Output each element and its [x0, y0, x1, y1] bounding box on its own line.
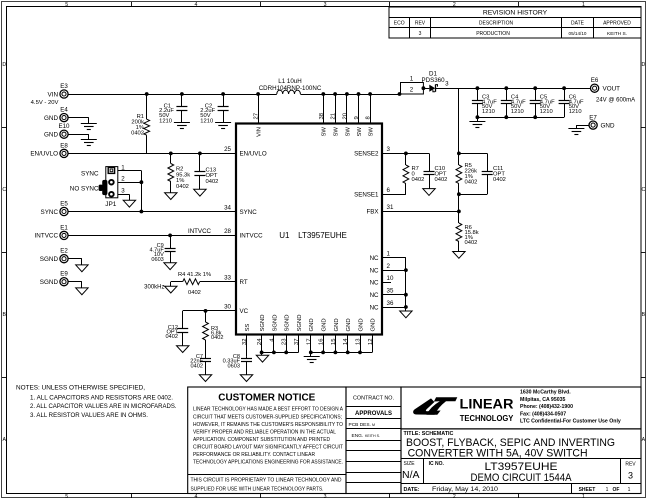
- svg-text:EN/UVLO: EN/UVLO: [240, 151, 267, 158]
- svg-text:NC: NC: [370, 292, 379, 299]
- svg-text:2: 2: [121, 176, 125, 183]
- svg-text:C: C: [2, 187, 6, 193]
- svg-text:13: 13: [356, 338, 362, 345]
- svg-text:3: 3: [324, 2, 327, 8]
- svg-text:14: 14: [343, 338, 349, 345]
- svg-text:3: 3: [387, 146, 391, 153]
- svg-text:E9: E9: [60, 271, 68, 278]
- svg-text:NOTES: UNLESS OTHERWISE SPECIF: NOTES: UNLESS OTHERWISE SPECIFIED,: [16, 385, 145, 392]
- svg-text:RT: RT: [240, 279, 248, 286]
- svg-text:PRODUCTION: PRODUCTION: [476, 31, 510, 37]
- svg-text:TECHNOLOGY APPLICATIONS ENGINE: TECHNOLOGY APPLICATIONS ENGINEERING FOR …: [193, 460, 343, 466]
- svg-text:SGND: SGND: [285, 314, 291, 331]
- svg-text:5: 5: [65, 2, 68, 8]
- svg-text:SGND: SGND: [272, 314, 278, 331]
- svg-text:D: D: [642, 62, 646, 68]
- svg-text:VIN: VIN: [257, 127, 263, 137]
- svg-text:INTVCC: INTVCC: [35, 233, 59, 240]
- svg-text:NO SYNC: NO SYNC: [70, 185, 99, 192]
- svg-text:0402: 0402: [435, 177, 448, 183]
- svg-text:R4 41.2k 1%: R4 41.2k 1%: [178, 272, 211, 278]
- svg-text:0402: 0402: [493, 177, 506, 183]
- svg-text:24: 24: [257, 338, 263, 345]
- svg-text:GND: GND: [44, 132, 58, 139]
- svg-text:VOUT: VOUT: [603, 86, 621, 93]
- svg-text:0402: 0402: [188, 290, 201, 296]
- svg-text:Phone: (408)432-1900: Phone: (408)432-1900: [520, 404, 573, 410]
- svg-text:23: 23: [282, 338, 288, 345]
- svg-text:CIRCUIT BOARD LAYOUT MAY SIGNI: CIRCUIT BOARD LAYOUT MAY SIGNIFICANTLY A…: [193, 444, 343, 450]
- svg-text:3. ALL RESISTOR VALUES ARE IN: 3. ALL RESISTOR VALUES ARE IN OHMS.: [30, 412, 148, 419]
- svg-text:300kHz: 300kHz: [144, 285, 164, 291]
- svg-text:DEMO CIRCUIT 1544A: DEMO CIRCUIT 1544A: [471, 472, 573, 484]
- svg-text:N/A: N/A: [402, 469, 420, 481]
- svg-text:0402: 0402: [176, 184, 189, 190]
- svg-text:1: 1: [628, 487, 631, 493]
- svg-text:CUSTOMER NOTICE: CUSTOMER NOTICE: [218, 391, 315, 403]
- svg-text:25: 25: [224, 146, 231, 153]
- svg-text:SGND: SGND: [40, 279, 59, 286]
- svg-text:GND: GND: [371, 318, 377, 331]
- svg-text:0603: 0603: [151, 257, 163, 263]
- svg-text:1210: 1210: [540, 109, 553, 115]
- svg-text:17: 17: [306, 339, 312, 346]
- svg-text:VC: VC: [240, 308, 249, 315]
- svg-text:OF: OF: [613, 487, 620, 493]
- svg-text:38: 38: [319, 112, 325, 119]
- svg-text:KEITH S.: KEITH S.: [607, 31, 627, 37]
- svg-text:E6: E6: [591, 77, 599, 84]
- svg-text:0402: 0402: [166, 334, 178, 340]
- svg-text:24V @ 600mA: 24V @ 600mA: [596, 97, 635, 103]
- svg-text:SUPPLIED FOR USE WITH LINEAR T: SUPPLIED FOR USE WITH LINEAR TECHNOLOGY …: [191, 487, 324, 493]
- svg-text:1210: 1210: [569, 109, 582, 115]
- svg-text:9: 9: [354, 116, 360, 119]
- svg-text:32: 32: [242, 339, 248, 346]
- svg-text:GND: GND: [322, 318, 328, 331]
- svg-text:GND: GND: [309, 318, 315, 331]
- svg-text:SW: SW: [345, 127, 351, 137]
- svg-text:PERFORMANCE OR RELIABILITY. C: PERFORMANCE OR RELIABILITY. CONTACT LINE…: [193, 452, 315, 458]
- svg-text:2: 2: [387, 263, 391, 270]
- svg-text:APPROVED: APPROVED: [603, 21, 631, 27]
- svg-text:1210: 1210: [159, 119, 172, 125]
- svg-text:1210: 1210: [200, 119, 213, 125]
- svg-text:SHEET: SHEET: [579, 487, 596, 493]
- svg-text:1: 1: [410, 76, 414, 83]
- svg-text:12: 12: [368, 339, 374, 346]
- svg-text:DATE:: DATE:: [404, 487, 420, 493]
- svg-text:SYNC: SYNC: [81, 171, 99, 178]
- svg-text:CIRCUIT THAT MEETS CUSTOMER-SU: CIRCUIT THAT MEETS CUSTOMER-SUPPLIED SPE…: [193, 414, 342, 420]
- svg-text:E1: E1: [60, 224, 68, 231]
- svg-text:IC NO.: IC NO.: [429, 461, 445, 467]
- svg-text:E3: E3: [60, 83, 68, 90]
- svg-text:SGND: SGND: [40, 256, 59, 263]
- svg-text:30: 30: [224, 304, 231, 311]
- svg-text:4: 4: [195, 2, 198, 8]
- svg-text:2: 2: [410, 87, 414, 94]
- svg-text:20: 20: [342, 112, 348, 119]
- svg-text:10: 10: [387, 275, 394, 282]
- svg-text:KEITH S.: KEITH S.: [365, 434, 380, 438]
- svg-text:REVISION HISTORY: REVISION HISTORY: [483, 9, 548, 16]
- svg-text:1. ALL CAPACITORS AND RESISTO: 1. ALL CAPACITORS AND RESISTORS ARE 0402…: [30, 394, 173, 401]
- svg-text:APPROVALS: APPROVALS: [355, 411, 392, 417]
- svg-text:GND: GND: [346, 318, 352, 331]
- svg-text:NC: NC: [370, 280, 379, 287]
- svg-text:U1: U1: [279, 231, 290, 240]
- svg-text:0402: 0402: [465, 179, 478, 185]
- svg-text:LINEAR: LINEAR: [460, 397, 514, 412]
- svg-text:CONVERTER WITH 5A, 40V SWITCH: CONVERTER WITH 5A, 40V SWITCH: [408, 448, 588, 460]
- svg-text:E10: E10: [58, 123, 70, 130]
- svg-text:A: A: [2, 437, 6, 443]
- svg-text:21: 21: [331, 113, 337, 120]
- svg-text:1210: 1210: [482, 109, 495, 115]
- svg-text:SGND: SGND: [297, 314, 303, 331]
- svg-text:LINEAR TECHNOLOGY HAS MADE A B: LINEAR TECHNOLOGY HAS MADE A BEST EFFORT…: [193, 407, 343, 413]
- svg-text:1210: 1210: [511, 109, 524, 115]
- svg-text:C: C: [642, 187, 646, 193]
- svg-text:3: 3: [628, 471, 633, 481]
- svg-text:GND: GND: [601, 122, 615, 129]
- svg-text:SGND: SGND: [260, 314, 266, 331]
- svg-text:VIN: VIN: [48, 91, 59, 98]
- svg-text:E2: E2: [60, 248, 68, 255]
- svg-text:1: 1: [121, 164, 125, 171]
- svg-text:REV: REV: [415, 21, 426, 27]
- svg-text:SYNC: SYNC: [240, 209, 258, 216]
- svg-text:3: 3: [445, 81, 449, 88]
- svg-text:2: 2: [453, 494, 456, 500]
- svg-text:NC: NC: [370, 255, 379, 262]
- svg-text:M: M: [372, 423, 375, 427]
- svg-text:36: 36: [387, 300, 394, 307]
- svg-text:1: 1: [606, 487, 609, 493]
- svg-text:SW: SW: [357, 127, 363, 137]
- svg-text:27: 27: [254, 113, 260, 120]
- svg-text:3: 3: [419, 31, 422, 37]
- svg-text:0402: 0402: [211, 335, 223, 341]
- svg-text:E7: E7: [589, 114, 597, 121]
- svg-text:SW: SW: [369, 127, 375, 137]
- svg-text:Fax: (408)434-0507: Fax: (408)434-0507: [520, 411, 566, 417]
- svg-text:Milpitas, CA 95035: Milpitas, CA 95035: [520, 397, 565, 403]
- svg-text:2. ALL CAPACITOR VALUES ARE I: 2. ALL CAPACITOR VALUES ARE IN MICROFARA…: [30, 403, 177, 410]
- svg-text:E5: E5: [60, 201, 68, 208]
- svg-text:16: 16: [319, 338, 325, 345]
- svg-text:LTC Confidential-For Customer: LTC Confidential-For Customer Use Only: [520, 419, 621, 425]
- svg-text:15: 15: [331, 338, 337, 345]
- svg-text:ENG.: ENG.: [352, 433, 364, 439]
- svg-text:SENSE1: SENSE1: [354, 192, 379, 199]
- svg-text:E4: E4: [60, 107, 68, 114]
- svg-text:Friday, May 14, 2010: Friday, May 14, 2010: [432, 487, 499, 493]
- svg-text:INTVCC: INTVCC: [188, 228, 212, 235]
- svg-text:D: D: [2, 62, 6, 68]
- svg-text:4.5V - 20V: 4.5V - 20V: [31, 100, 59, 106]
- svg-text:REV: REV: [625, 462, 636, 468]
- svg-text:NC: NC: [370, 267, 379, 274]
- svg-text:INTVCC: INTVCC: [240, 233, 264, 240]
- svg-text:TECHNOLOGY: TECHNOLOGY: [460, 413, 514, 423]
- svg-text:3: 3: [324, 494, 327, 500]
- svg-text:28: 28: [224, 228, 231, 235]
- svg-text:SW: SW: [334, 127, 340, 137]
- svg-text:APPLICATION. COMPONENT SUBSTI: APPLICATION. COMPONENT SUBSTITUTION AND …: [193, 437, 330, 443]
- svg-text:SS: SS: [245, 324, 251, 332]
- svg-text:GND: GND: [334, 318, 340, 331]
- svg-text:0603: 0603: [228, 363, 240, 369]
- svg-text:A: A: [642, 437, 646, 443]
- svg-text:5: 5: [65, 494, 68, 500]
- svg-text:0402: 0402: [412, 177, 425, 183]
- svg-text:PDS360: PDS360: [421, 77, 445, 84]
- svg-text:1630 McCarthy Blvd.: 1630 McCarthy Blvd.: [520, 390, 571, 396]
- svg-text:B: B: [642, 312, 646, 318]
- svg-text:1: 1: [387, 251, 391, 258]
- svg-text:4: 4: [195, 494, 198, 500]
- svg-text:0402: 0402: [131, 131, 144, 137]
- svg-text:CDRH104RNP-100NC: CDRH104RNP-100NC: [259, 85, 322, 92]
- svg-text:37: 37: [294, 339, 300, 346]
- svg-text:GND: GND: [358, 318, 364, 331]
- svg-text:DESCRIPTION: DESCRIPTION: [479, 21, 514, 27]
- svg-text:34: 34: [224, 204, 231, 211]
- svg-text:GND: GND: [44, 115, 58, 122]
- svg-text:JP1: JP1: [105, 201, 117, 208]
- svg-text:0402: 0402: [465, 240, 478, 246]
- svg-text:31: 31: [387, 204, 394, 211]
- svg-text:SYNC: SYNC: [41, 209, 59, 216]
- svg-text:3: 3: [121, 188, 125, 195]
- svg-text:LT3957EUHE: LT3957EUHE: [298, 231, 347, 240]
- svg-text:0402: 0402: [206, 179, 219, 185]
- svg-text:CONTRACT NO.: CONTRACT NO.: [353, 395, 394, 401]
- svg-text:35: 35: [387, 288, 394, 295]
- svg-text:B: B: [2, 312, 6, 318]
- svg-text:DATE: DATE: [571, 21, 585, 27]
- svg-text:SW: SW: [322, 127, 328, 137]
- svg-text:ECO: ECO: [394, 21, 405, 27]
- svg-text:EN/UVLO: EN/UVLO: [30, 151, 58, 158]
- svg-text:0402: 0402: [191, 363, 203, 369]
- svg-text:PCB DES.: PCB DES.: [349, 422, 371, 428]
- svg-text:E8: E8: [60, 142, 68, 149]
- svg-text:SENSE2: SENSE2: [354, 151, 379, 158]
- svg-text:33: 33: [224, 275, 231, 282]
- svg-text:NC: NC: [370, 304, 379, 311]
- svg-text:SIZE: SIZE: [404, 461, 416, 467]
- svg-text:VERIFY PROPER AND RELIABLE OPE: VERIFY PROPER AND RELIABLE OPERATION IN …: [193, 429, 337, 435]
- svg-text:1: 1: [582, 494, 585, 500]
- svg-text:05/14/10: 05/14/10: [569, 31, 587, 36]
- svg-text:6: 6: [387, 187, 391, 194]
- svg-text:THIS CIRCUIT IS PROPRIETARY TO: THIS CIRCUIT IS PROPRIETARY TO LINEAR TE…: [191, 478, 342, 484]
- svg-text:HOWEVER, IT REMAINS THE CUSTOM: HOWEVER, IT REMAINS THE CUSTOMER'S RESPO…: [193, 422, 343, 428]
- svg-text:FBX: FBX: [366, 209, 378, 216]
